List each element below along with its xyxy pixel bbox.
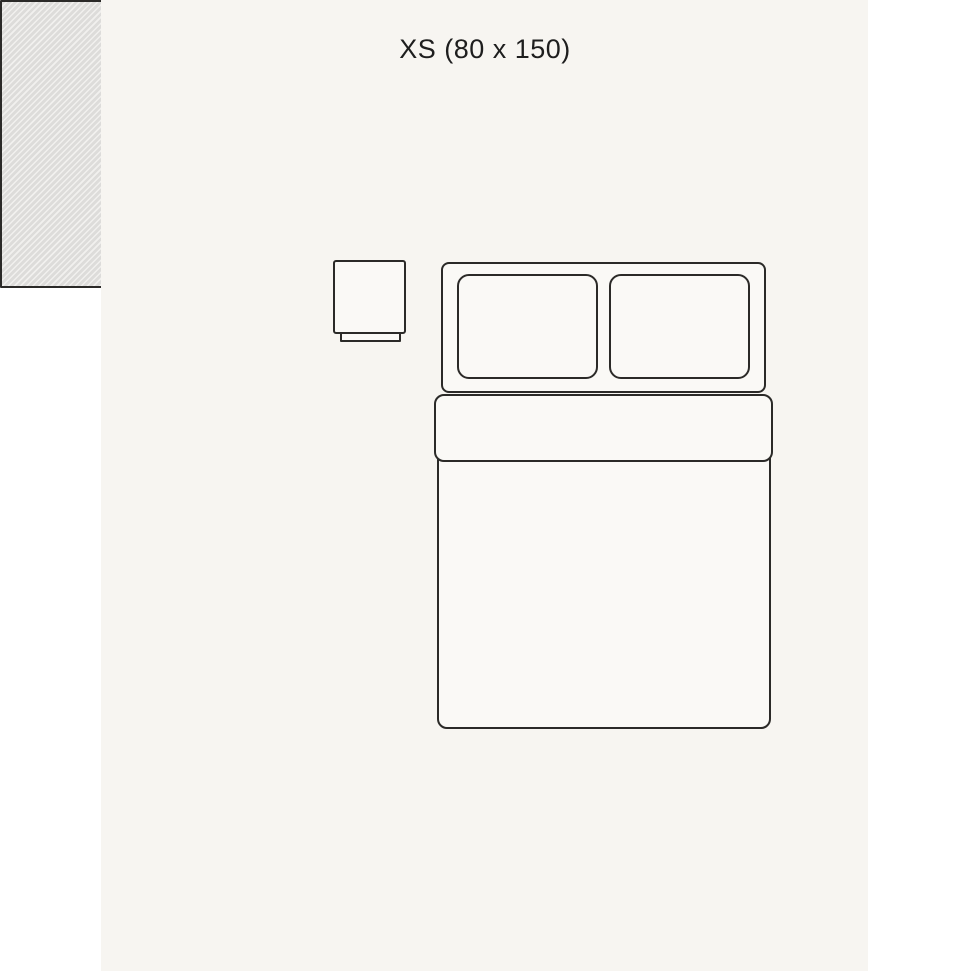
pillow-right [609,274,750,379]
bed-duvet-fold [434,394,773,462]
size-guide-page: XS (80 x 150) [0,0,970,971]
nightstand [333,260,406,334]
size-title: XS (80 x 150) [0,34,970,65]
bed-duvet-body [437,430,771,729]
pillow-left [457,274,598,379]
